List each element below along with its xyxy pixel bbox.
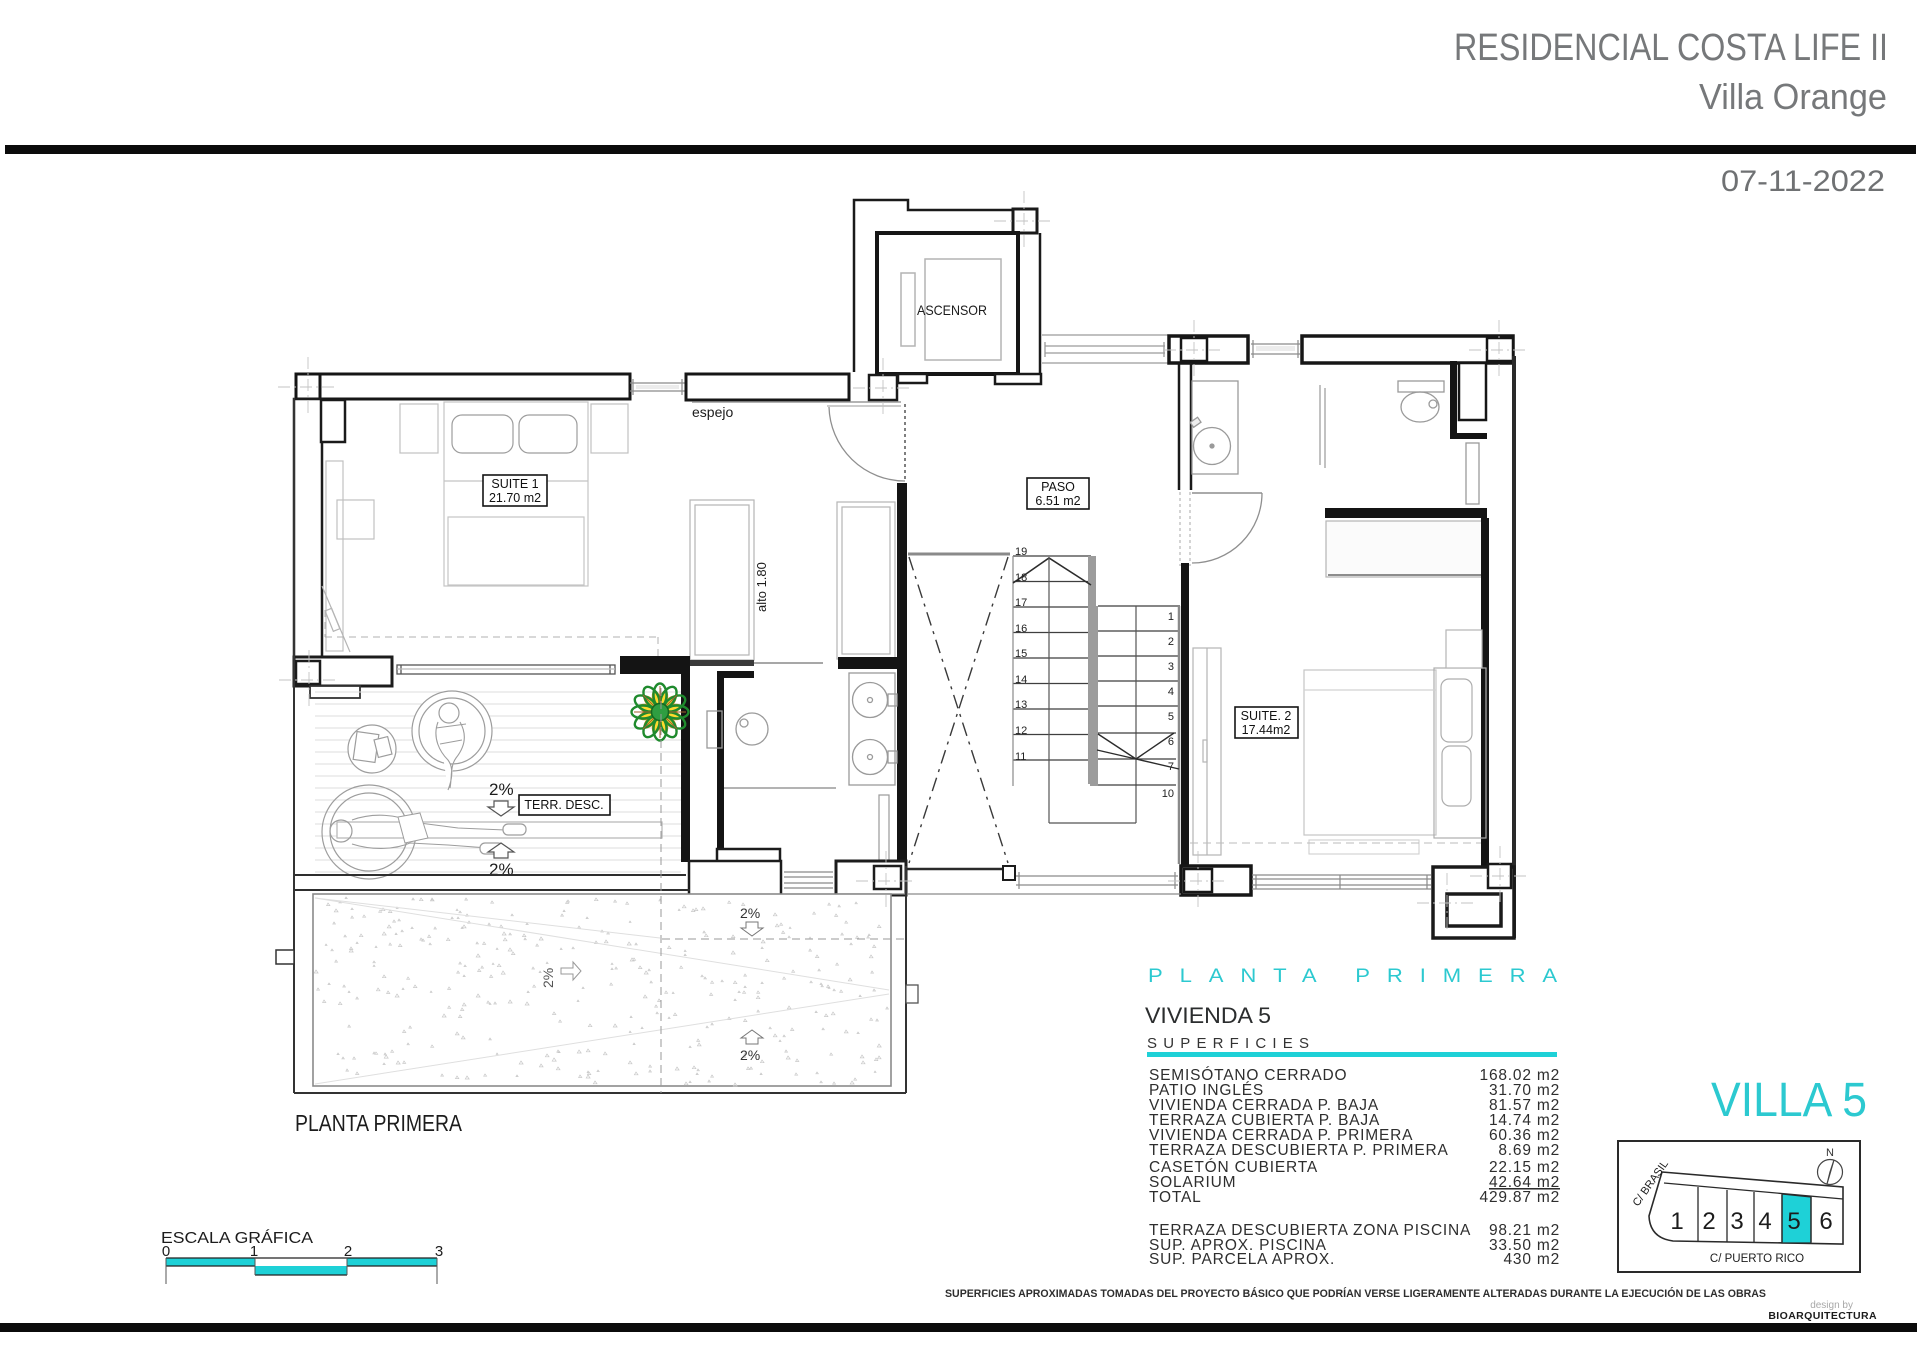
svg-text:17.44m2: 17.44m2 <box>1242 723 1291 737</box>
svg-text:4: 4 <box>1168 686 1174 698</box>
svg-text:7: 7 <box>1168 761 1174 773</box>
svg-text:2: 2 <box>1168 636 1174 648</box>
svg-text:12: 12 <box>1015 725 1027 737</box>
svg-text:PLANTA PRIMERA: PLANTA PRIMERA <box>1148 966 1574 987</box>
svg-text:11: 11 <box>1015 751 1026 763</box>
svg-text:RESIDENCIAL COSTA LIFE II: RESIDENCIAL COSTA LIFE II <box>1454 27 1888 69</box>
svg-text:16: 16 <box>1015 623 1027 635</box>
svg-text:espejo: espejo <box>692 404 733 420</box>
svg-text:PASO: PASO <box>1041 480 1075 494</box>
svg-text:TOTAL: TOTAL <box>1149 1189 1202 1206</box>
svg-text:2%: 2% <box>540 968 556 988</box>
svg-text:13: 13 <box>1015 699 1027 711</box>
svg-text:VILLA 5: VILLA 5 <box>1711 1074 1867 1127</box>
svg-text:BIOARQUITECTURA: BIOARQUITECTURA <box>1768 1310 1877 1322</box>
svg-text:5: 5 <box>1168 711 1174 723</box>
svg-text:6: 6 <box>1168 736 1174 748</box>
svg-text:1: 1 <box>1168 611 1174 623</box>
svg-text:8.69 m2: 8.69 m2 <box>1498 1142 1560 1159</box>
svg-text:Villa Orange: Villa Orange <box>1699 76 1887 117</box>
svg-text:2%: 2% <box>489 860 514 879</box>
svg-text:PLANTA PRIMERA: PLANTA PRIMERA <box>295 1110 463 1136</box>
svg-text:N: N <box>1826 1147 1834 1159</box>
svg-text:430 m2: 430 m2 <box>1504 1251 1561 1268</box>
svg-text:1: 1 <box>1670 1208 1683 1235</box>
svg-text:alto 1.80: alto 1.80 <box>754 562 769 612</box>
svg-text:2: 2 <box>1702 1208 1715 1235</box>
svg-text:SUPERFICIES APROXIMADAS TOMADA: SUPERFICIES APROXIMADAS TOMADAS DEL PROY… <box>945 1287 1766 1300</box>
svg-text:10: 10 <box>1162 788 1174 800</box>
svg-text:19: 19 <box>1015 546 1027 558</box>
svg-text:21.70 m2: 21.70 m2 <box>489 491 541 505</box>
svg-text:SUP. PARCELA APROX.: SUP. PARCELA APROX. <box>1149 1251 1335 1268</box>
svg-text:SUITE. 2: SUITE. 2 <box>1241 709 1292 723</box>
svg-text:TERRAZA DESCUBIERTA P. PRIMERA: TERRAZA DESCUBIERTA P. PRIMERA <box>1149 1142 1449 1159</box>
svg-text:2%: 2% <box>740 1047 760 1063</box>
svg-text:429.87 m2: 429.87 m2 <box>1480 1189 1560 1206</box>
svg-text:ESCALA GRÁFICA: ESCALA GRÁFICA <box>161 1230 314 1247</box>
svg-text:ASCENSOR: ASCENSOR <box>917 302 987 318</box>
svg-text:2%: 2% <box>489 780 514 799</box>
svg-text:C/ PUERTO RICO: C/ PUERTO RICO <box>1710 1253 1804 1265</box>
svg-text:17: 17 <box>1015 597 1027 609</box>
svg-text:3: 3 <box>1168 661 1174 673</box>
svg-text:07-11-2022: 07-11-2022 <box>1721 165 1885 198</box>
svg-text:6.51 m2: 6.51 m2 <box>1035 494 1080 508</box>
svg-text:15: 15 <box>1015 648 1027 660</box>
svg-text:3: 3 <box>1730 1208 1743 1235</box>
svg-text:6: 6 <box>1819 1208 1832 1235</box>
svg-text:VIVIENDA 5: VIVIENDA 5 <box>1145 1003 1271 1028</box>
svg-text:18: 18 <box>1015 572 1027 584</box>
svg-text:SUITE 1: SUITE 1 <box>491 477 538 491</box>
svg-text:TERR. DESC.: TERR. DESC. <box>524 798 603 812</box>
svg-text:4: 4 <box>1758 1208 1771 1235</box>
svg-text:5: 5 <box>1787 1208 1800 1235</box>
svg-text:14: 14 <box>1015 674 1027 686</box>
svg-text:2%: 2% <box>740 905 760 921</box>
